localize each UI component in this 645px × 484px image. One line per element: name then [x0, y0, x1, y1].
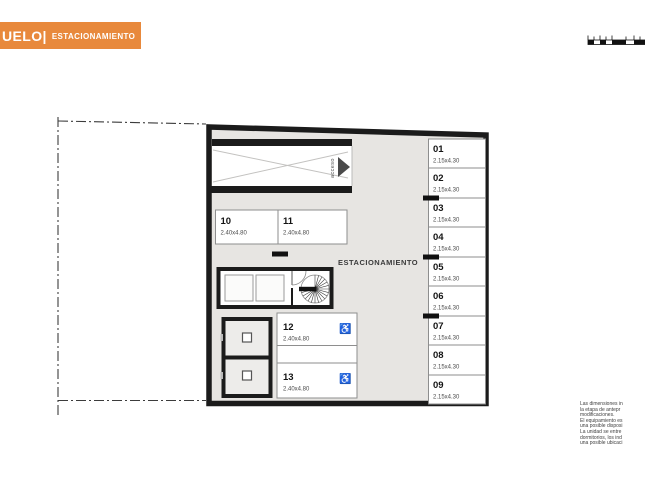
spot-number: 11 [283, 216, 294, 227]
parking-spot-01: 01 2.15x4.30 [429, 139, 486, 168]
ramp-wall-top [212, 139, 352, 146]
column-mark [272, 252, 288, 257]
parking-spot-06: 06 2.15x4.30 [429, 286, 486, 316]
column-mark [423, 255, 439, 260]
shaft-door-mark [221, 372, 224, 379]
parking-spot-03: 03 2.15x4.30 [429, 198, 486, 227]
spot-number: 09 [433, 380, 444, 391]
page: UELO| ESTACIONAMIENTO acceso 01 2.15x4.3… [0, 0, 645, 484]
shaft-door-mark [221, 334, 224, 341]
spot-number: 06 [433, 291, 444, 302]
spot-dims: 2.40x4.80 [221, 231, 248, 237]
parking-spot-02: 02 2.15x4.30 [429, 168, 486, 198]
parking-spot-04: 04 2.15x4.30 [429, 227, 486, 257]
spot-number: 02 [433, 173, 444, 184]
column-mark [423, 314, 439, 319]
spot-number: 01 [433, 144, 444, 155]
spot-number: 03 [433, 203, 444, 214]
parking-spot-08: 08 2.15x4.30 [429, 345, 486, 375]
spot-dims: 2.15x4.30 [433, 188, 460, 194]
wheelchair-icon: ♿ [339, 372, 351, 385]
spot-dims: 2.40x4.80 [283, 337, 310, 343]
spot-dims: 2.15x4.30 [433, 247, 460, 253]
shaft-symbol [243, 333, 252, 342]
shaft-symbol [243, 371, 252, 380]
parking-spot-09: 09 2.15x4.30 [429, 375, 486, 404]
parking-spot-05: 05 2.15x4.30 [429, 257, 486, 286]
parking-spot-10: 10 2.40x4.80 [216, 210, 279, 244]
spot-number: 08 [433, 350, 444, 361]
parking-spot-07: 07 2.15x4.30 [429, 316, 486, 345]
stair-hub [299, 287, 316, 291]
spot-number: 04 [433, 232, 444, 243]
spot-dims: 2.15x4.30 [433, 159, 460, 165]
stair-core [219, 269, 332, 307]
elevator-shafts [221, 319, 273, 396]
scale-segment [588, 40, 594, 45]
property-lines [58, 117, 206, 416]
spot-number: 07 [433, 321, 444, 332]
wheelchair-icon: ♿ [339, 322, 351, 335]
access-ramp: acceso [209, 139, 352, 193]
spot-dims: 2.15x4.30 [433, 306, 460, 312]
core-room [256, 275, 284, 301]
spot-number: 13 [283, 372, 294, 383]
disclaimer-text: Las dimensiones in la etapa de antepr mo… [580, 402, 645, 447]
scale-segment [600, 40, 606, 45]
property-line-top [58, 121, 206, 124]
spot-number: 10 [221, 216, 232, 227]
column-mark [423, 196, 439, 201]
area-label: ESTACIONAMIENTO [338, 258, 418, 267]
ramp-label: acceso [330, 158, 336, 178]
spot-dims: 2.15x4.30 [433, 365, 460, 371]
scale-bar [588, 36, 645, 45]
scale-segment [612, 40, 626, 45]
core-room [225, 275, 253, 301]
spot-dims: 2.15x4.30 [433, 277, 460, 283]
spot-dims: 2.15x4.30 [433, 218, 460, 224]
spot-dims: 2.15x4.30 [433, 336, 460, 342]
spot-dims: 2.15x4.30 [433, 395, 460, 401]
ramp-wall-bottom [209, 186, 352, 193]
scale-segment [634, 40, 645, 45]
spot-number: 12 [283, 322, 294, 333]
disclaimer-line: una posible ubicaci [580, 441, 645, 447]
spot-dims: 2.40x4.80 [283, 387, 310, 393]
accessible-parking-block: 12 2.40x4.80 ♿ 13 2.40x4.80 ♿ [277, 313, 357, 398]
floor-plan: acceso 01 2.15x4.30 02 2.15x4.30 03 2.15… [0, 0, 645, 484]
parking-spot-11: 11 2.40x4.80 [278, 210, 347, 244]
spot-dims: 2.40x4.80 [283, 231, 310, 237]
scale-ticks [588, 36, 640, 41]
spot-number: 05 [433, 262, 444, 273]
